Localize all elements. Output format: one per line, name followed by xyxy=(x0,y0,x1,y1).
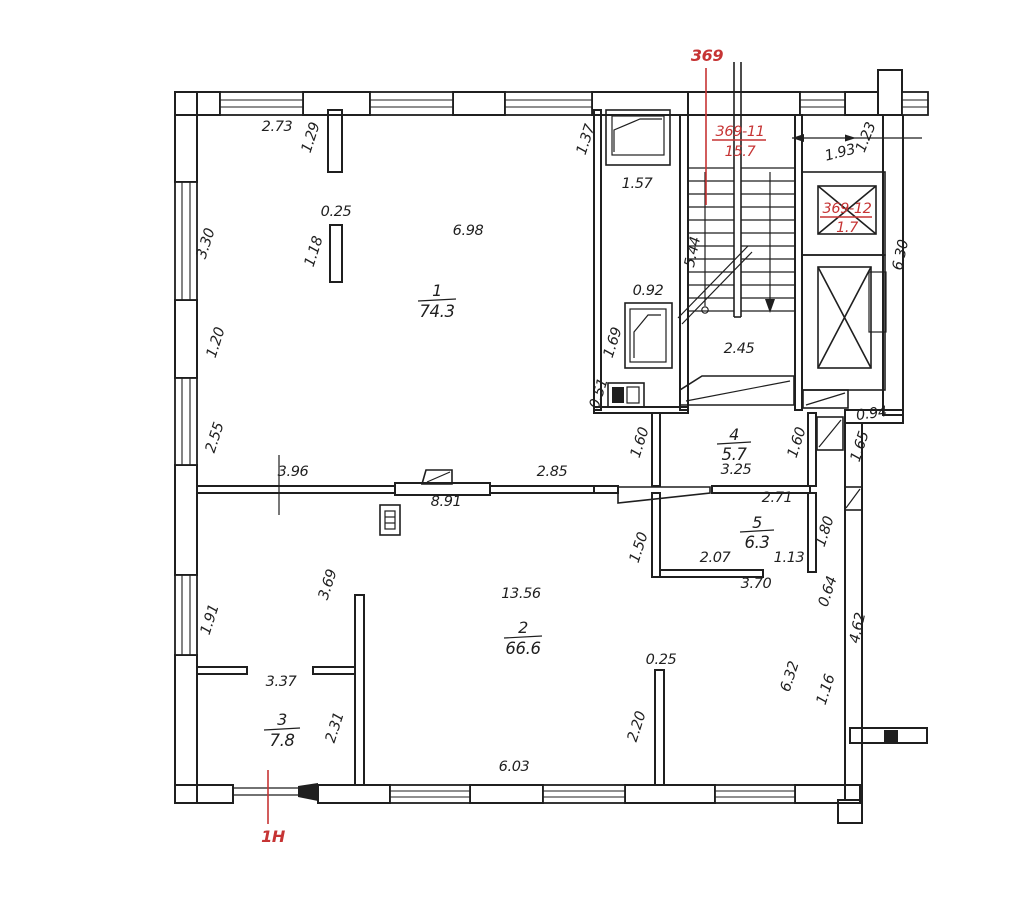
room1-right-wall xyxy=(594,110,601,410)
unit-369-12-area: 1.7 xyxy=(836,220,859,236)
dimension-label: 3.96 xyxy=(278,464,309,480)
dimension-label: 1.20 xyxy=(204,326,229,360)
divider-door-swing xyxy=(422,470,452,484)
window-left-2 xyxy=(175,378,197,465)
dimension-label: 1.37 xyxy=(574,122,599,157)
window-top-2 xyxy=(370,92,453,115)
dimension-label: 1.13 xyxy=(774,550,805,566)
room3-top-wall xyxy=(313,667,355,674)
stair-right-wall xyxy=(795,115,802,410)
unit-369-11-number: 369-11 xyxy=(716,124,765,140)
lobby-ramp xyxy=(680,376,794,405)
dimension-label: 1.57 xyxy=(622,176,654,192)
window-top-1 xyxy=(220,92,303,115)
window-top-3 xyxy=(505,92,592,115)
dimension-label: 0.25 xyxy=(321,204,352,220)
stair-rail-start xyxy=(702,307,708,313)
dimension-label: 1.93 xyxy=(823,142,857,165)
room3-top-wall xyxy=(197,667,247,674)
room-label-3: 3 7.8 xyxy=(264,710,300,750)
window-bottom-2 xyxy=(543,785,625,803)
svg-text:5: 5 xyxy=(752,513,762,532)
vent-shaft-2 xyxy=(625,303,672,368)
dimension-label: 1.60 xyxy=(628,426,653,460)
dimension-label: 2.07 xyxy=(700,550,732,566)
dimension-label: 3.69 xyxy=(316,568,341,602)
room4-right-wall xyxy=(808,413,816,486)
dimension-label: 2.71 xyxy=(762,490,793,506)
staircase xyxy=(678,62,795,324)
unit-369-11-area: 15.7 xyxy=(725,144,757,160)
unit-369-label: 369 xyxy=(691,46,723,65)
room-label-2: 2 66.6 xyxy=(504,618,542,658)
stair-stringer xyxy=(734,62,741,317)
unit-marks: 369 369-11 15.7 369-12 1.7 1H xyxy=(261,46,872,846)
dimension-label: 0.94 xyxy=(855,404,888,424)
dimension-label: 0.64 xyxy=(816,575,841,609)
dimension-label: 1.69 xyxy=(601,326,626,360)
room3-partition xyxy=(355,595,364,785)
dimension-label: 2.20 xyxy=(625,710,650,744)
outer-walls xyxy=(175,70,927,823)
elevator-large xyxy=(802,255,886,390)
dimension-label: 5.44 xyxy=(682,235,704,269)
wall-stub-129 xyxy=(328,110,342,172)
svg-text:66.6: 66.6 xyxy=(505,639,540,658)
dimension-label: 6.30 xyxy=(890,238,912,272)
dimension-label: 3.25 xyxy=(721,462,752,478)
svg-text:6.3: 6.3 xyxy=(744,533,769,552)
svg-text:2: 2 xyxy=(518,618,528,637)
elevator-lobby-door xyxy=(803,390,848,408)
dimension-label: 1.60 xyxy=(785,426,810,460)
window-top-5 xyxy=(902,92,928,115)
window-left-3 xyxy=(175,575,197,655)
room-labels: 1 74.3 2 66.6 3 7.8 4 5.7 5 6.3 xyxy=(264,281,774,750)
room5-top-door xyxy=(618,487,710,503)
dimension-label: 8.91 xyxy=(431,494,462,510)
floor-plan-drawing: 369 369-11 15.7 369-12 1.7 1H 1 74.3 2 6… xyxy=(0,0,1024,900)
room5-left-wall xyxy=(652,493,660,577)
dimension-label: 13.56 xyxy=(501,586,541,602)
window-bottom-1 xyxy=(390,785,470,803)
dimension-label: 1.16 xyxy=(814,673,839,707)
dimension-label: 1.50 xyxy=(627,531,652,565)
svg-text:3: 3 xyxy=(277,710,287,729)
room-label-5: 5 6.3 xyxy=(740,513,774,552)
dimension-label: 2.73 xyxy=(262,119,293,135)
unit-1h-label: 1H xyxy=(261,827,286,846)
dimension-label: 1.91 xyxy=(198,603,223,637)
chimney-shaft xyxy=(878,70,902,115)
dimension-label: 3.37 xyxy=(266,674,298,690)
dimension-label: 2.31 xyxy=(323,711,348,745)
room5-right-wall xyxy=(808,493,816,572)
room-label-1: 1 74.3 xyxy=(418,281,456,321)
room2-partition xyxy=(655,670,664,785)
dimension-labels: 2.731.290.251.186.981.371.573.301.202.55… xyxy=(194,119,912,775)
dimension-label: 3.70 xyxy=(741,576,772,592)
window-bottom-3 xyxy=(715,785,795,803)
dimension-label: 2.55 xyxy=(203,421,228,455)
vent-shaft-3 xyxy=(608,383,644,407)
dimension-label: 4.62 xyxy=(847,611,869,645)
svg-text:74.3: 74.3 xyxy=(419,302,454,321)
entrance-door xyxy=(233,783,318,801)
wall-stub-118 xyxy=(330,225,342,282)
dimension-label: 6.03 xyxy=(499,759,530,775)
dimension-label: 1.29 xyxy=(299,121,324,155)
window-left-1 xyxy=(175,182,197,300)
unit-369-12-number: 369-12 xyxy=(823,201,872,217)
svg-text:7.8: 7.8 xyxy=(269,731,294,750)
dimension-label: 6.98 xyxy=(453,223,484,239)
dimension-label: 1.18 xyxy=(302,235,327,269)
vent-shaft-1 xyxy=(606,110,670,165)
dimension-label: 2.85 xyxy=(537,464,568,480)
utility-column xyxy=(380,505,400,535)
room5-side-door xyxy=(845,487,862,510)
room4-door xyxy=(817,417,843,450)
wall-fill-block xyxy=(884,730,898,743)
svg-text:1: 1 xyxy=(432,281,442,300)
dimension-label: 0.25 xyxy=(646,652,677,668)
room4-left-wall xyxy=(652,413,660,486)
dimension-label: 6.32 xyxy=(778,660,803,694)
room-label-4: 4 5.7 xyxy=(717,425,751,464)
window-top-4 xyxy=(800,92,845,115)
dimension-label: 2.45 xyxy=(724,341,755,357)
dimension-label: 1.65 xyxy=(848,430,873,464)
dimension-label: 0.92 xyxy=(633,283,664,299)
svg-text:4: 4 xyxy=(729,425,739,444)
